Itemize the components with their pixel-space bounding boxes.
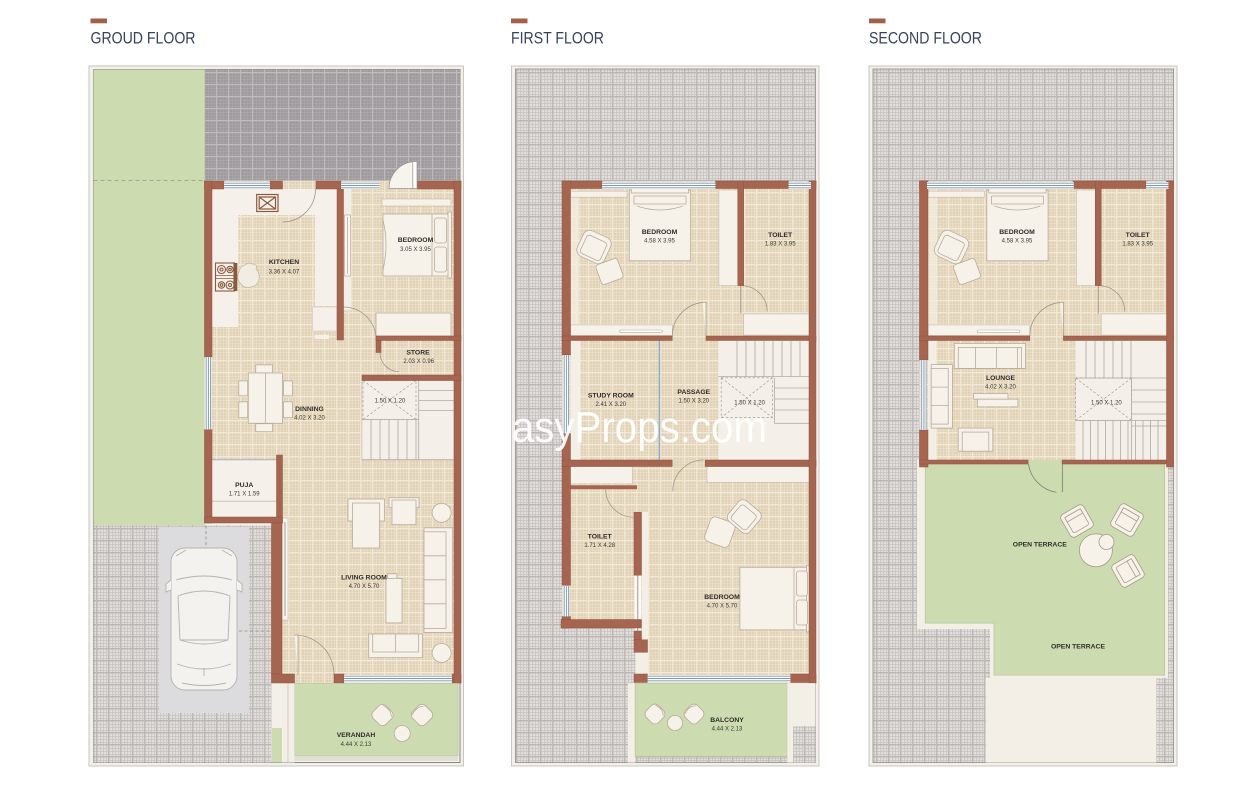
svg-text:KITCHEN: KITCHEN xyxy=(269,259,299,266)
svg-text:1.50 X 1.20: 1.50 X 1.20 xyxy=(1091,400,1122,406)
svg-text:4.70 X 5.70: 4.70 X 5.70 xyxy=(349,584,380,590)
svg-text:GROUD FLOOR: GROUD FLOOR xyxy=(91,30,196,48)
svg-text:1.83 X 3.95: 1.83 X 3.95 xyxy=(1122,242,1153,248)
svg-text:SECOND FLOOR: SECOND FLOOR xyxy=(869,30,982,48)
svg-text:TOILET: TOILET xyxy=(588,534,613,541)
svg-text:1.71 X 4.28: 1.71 X 4.28 xyxy=(584,543,615,549)
svg-text:4.44 X 2.13: 4.44 X 2.13 xyxy=(712,727,743,733)
svg-text:4.70 X 5.70: 4.70 X 5.70 xyxy=(707,604,738,610)
svg-text:BEDROOM: BEDROOM xyxy=(704,594,740,601)
svg-text:TOILET: TOILET xyxy=(1126,232,1151,239)
svg-text:4.02 X 3.20: 4.02 X 3.20 xyxy=(294,416,325,422)
svg-text:LOUNGE: LOUNGE xyxy=(986,375,1016,382)
svg-text:4.58 X 3.95: 4.58 X 3.95 xyxy=(644,239,675,245)
svg-text:FIRST FLOOR: FIRST FLOOR xyxy=(511,30,604,48)
svg-text:1.71 X 1.59: 1.71 X 1.59 xyxy=(229,492,260,498)
svg-text:3.36 X 4.07: 3.36 X 4.07 xyxy=(269,270,300,276)
svg-text:BEDROOM: BEDROOM xyxy=(999,229,1035,236)
svg-text:VERANDAH: VERANDAH xyxy=(337,732,376,739)
svg-text:1.83 X 3.95: 1.83 X 3.95 xyxy=(765,242,796,248)
svg-text:1.50 X 1.20: 1.50 X 1.20 xyxy=(375,399,406,405)
svg-text:PASSAGE: PASSAGE xyxy=(677,389,710,396)
svg-text:3.05 X 3.95: 3.05 X 3.95 xyxy=(400,247,431,253)
svg-text:BEDROOM: BEDROOM xyxy=(642,229,678,236)
svg-text:BEDROOM: BEDROOM xyxy=(398,237,434,244)
svg-text:4.58 X 3.95: 4.58 X 3.95 xyxy=(1002,239,1033,245)
svg-text:STUDY ROOM: STUDY ROOM xyxy=(588,393,634,400)
svg-text:PUJA: PUJA xyxy=(235,482,253,489)
svg-text:4.02 X 3.20: 4.02 X 3.20 xyxy=(985,385,1016,391)
svg-text:LIVING ROOM: LIVING ROOM xyxy=(341,575,387,582)
svg-text:4.44 X 2.13: 4.44 X 2.13 xyxy=(341,742,372,748)
svg-text:STORE: STORE xyxy=(406,350,430,357)
svg-text:TOILET: TOILET xyxy=(768,232,793,239)
svg-text:BALCONY: BALCONY xyxy=(710,717,744,724)
svg-text:OPEN TERRACE: OPEN TERRACE xyxy=(1013,542,1067,549)
svg-text:DINNING: DINNING xyxy=(295,406,324,413)
svg-text:OPEN TERRACE: OPEN TERRACE xyxy=(1051,644,1105,651)
svg-text:EasyProps.com: EasyProps.com xyxy=(485,403,767,452)
svg-text:2.03 X 0.96: 2.03 X 0.96 xyxy=(403,359,434,365)
